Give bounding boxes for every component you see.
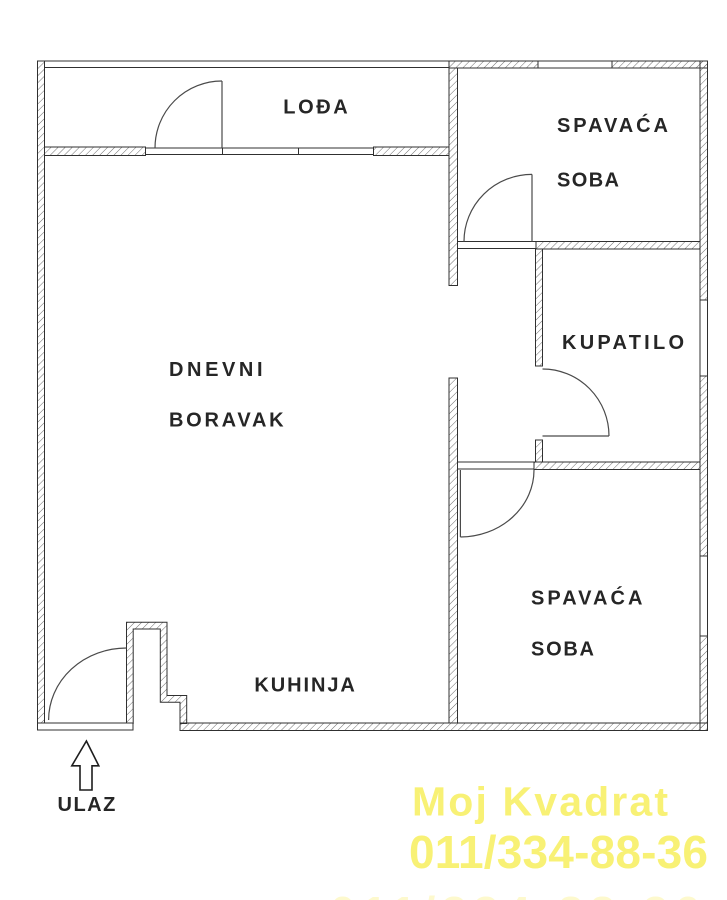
svg-text:ULAZ: ULAZ: [58, 794, 116, 816]
svg-text:DNEVNI: DNEVNI: [169, 359, 263, 381]
svg-text:SPAVAĆA: SPAVAĆA: [531, 586, 642, 610]
svg-text:SPAVAĆA: SPAVAĆA: [557, 113, 668, 137]
svg-text:SOBA: SOBA: [557, 169, 619, 191]
svg-text:KUHINJA: KUHINJA: [254, 674, 354, 696]
svg-text:KUPATILO: KUPATILO: [562, 332, 684, 354]
svg-text:SOBA: SOBA: [531, 638, 594, 660]
svg-text:Moj Kvadrat: Moj Kvadrat: [412, 779, 668, 825]
svg-text:BORAVAK: BORAVAK: [169, 410, 284, 432]
svg-text:011/334-88-36: 011/334-88-36: [409, 826, 708, 878]
svg-text:LOĐA: LOĐA: [283, 96, 347, 118]
svg-text:011/334-88-36: 011/334-88-36: [330, 887, 700, 900]
